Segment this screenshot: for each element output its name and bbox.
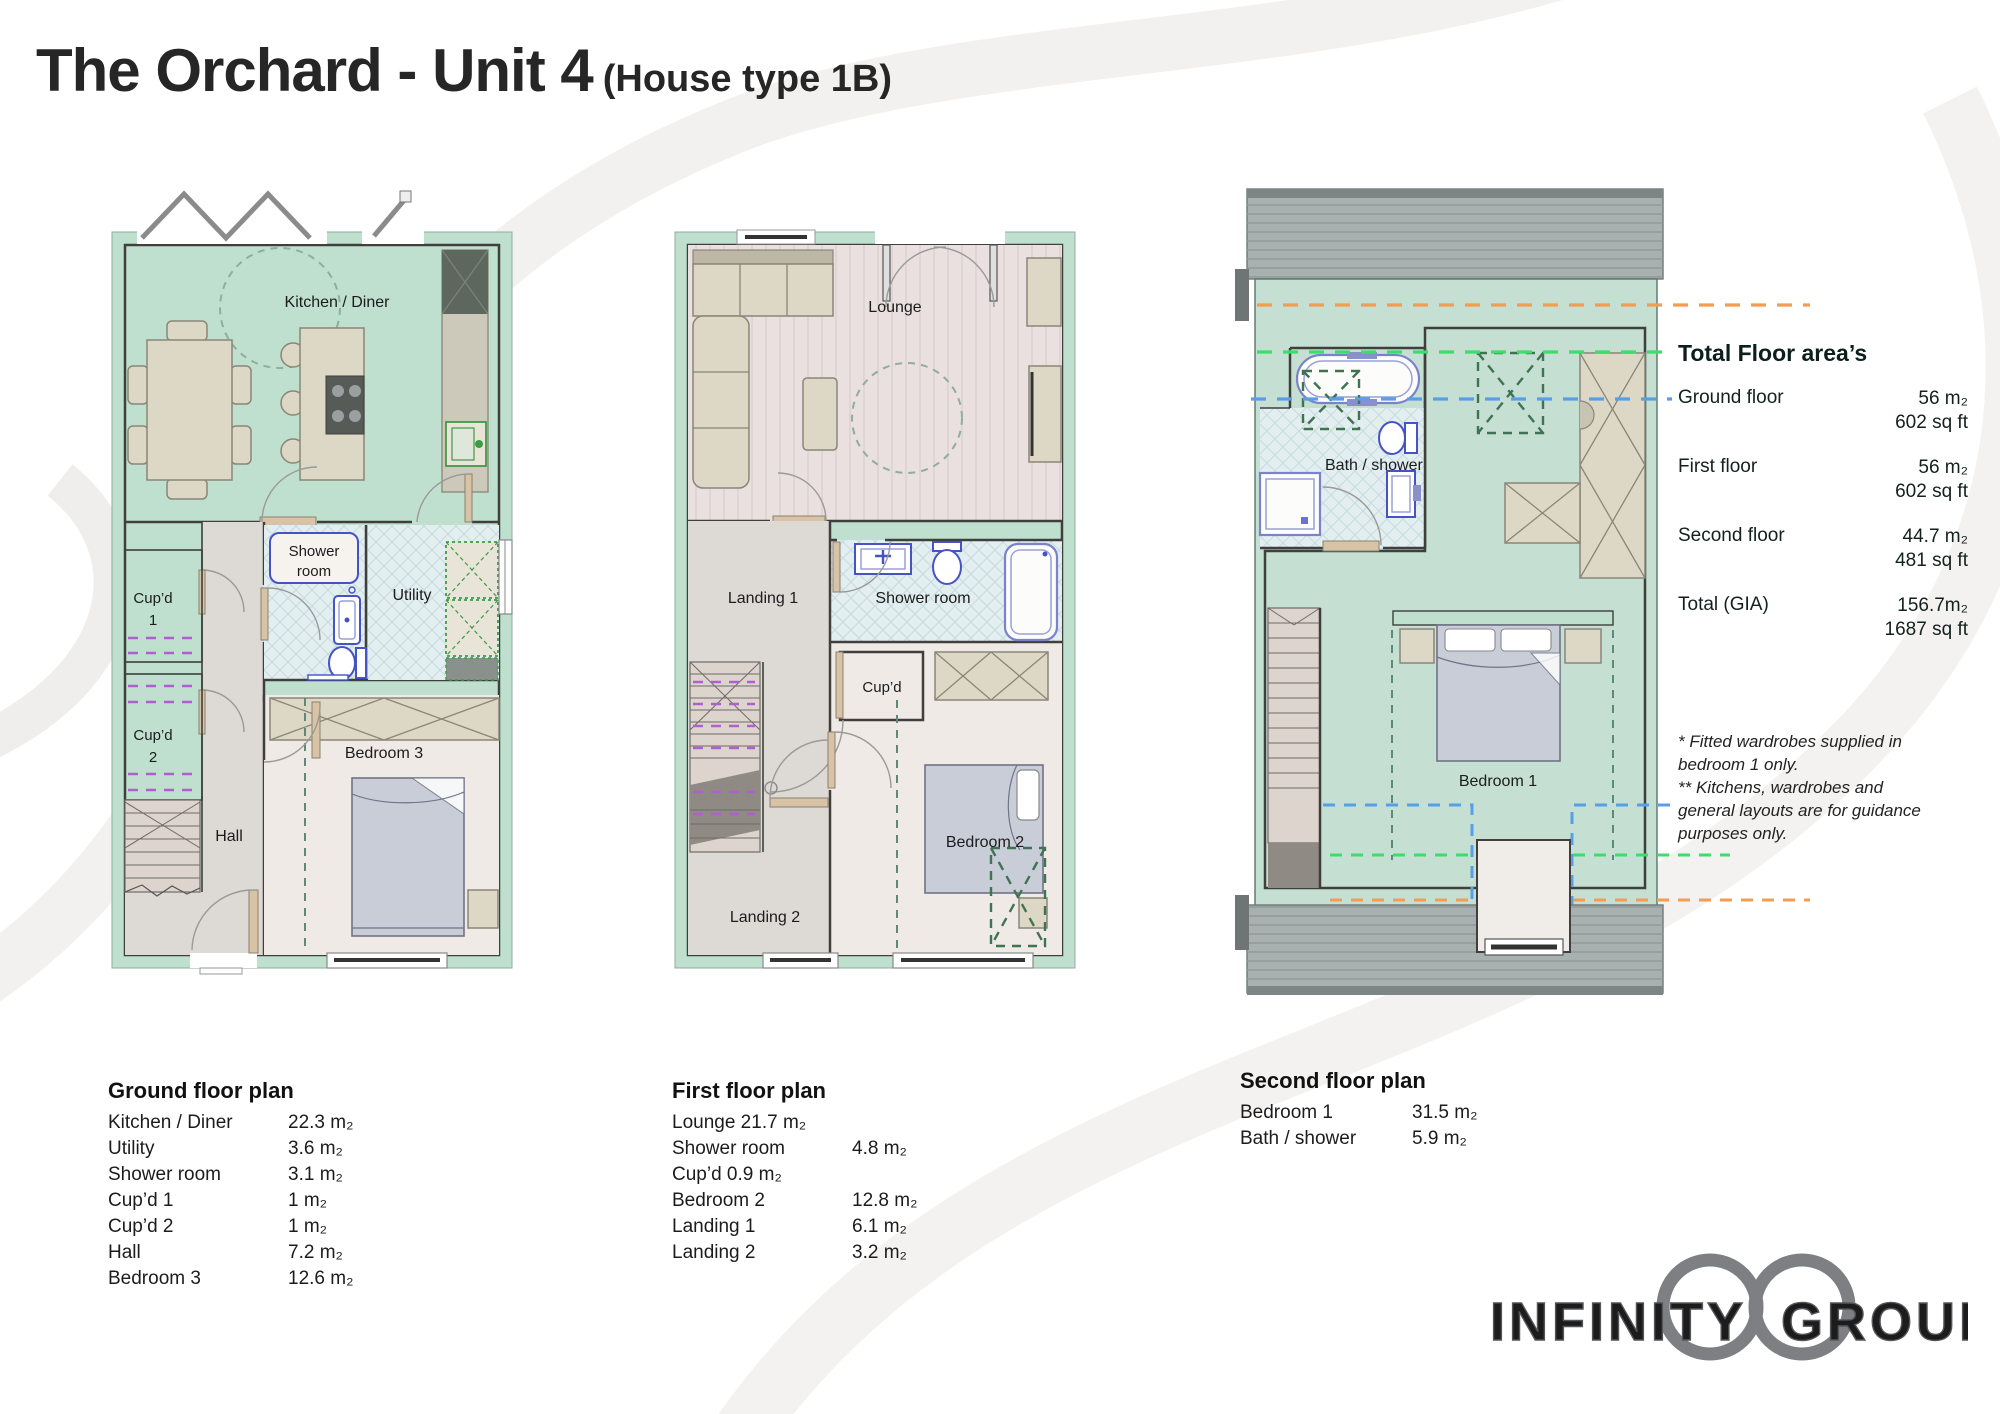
table-row: Cup’d 21 m₂: [108, 1214, 353, 1240]
title-suffix: (House type 1B): [603, 58, 892, 100]
kitchen-island: [281, 328, 364, 480]
table-row: Shower room4.8 m₂: [672, 1136, 917, 1162]
first-floor-table: First floor plan Lounge 21.7 m₂ Shower r…: [672, 1078, 917, 1266]
footnote-1: * Fitted wardrobes supplied in bedroom 1…: [1678, 730, 1923, 776]
hall-lower-floor: [125, 890, 264, 955]
footnotes: * Fitted wardrobes supplied in bedroom 1…: [1678, 730, 1923, 845]
total-row-second: Second floor 44.7 m₂ 481 sq ft: [1678, 525, 1968, 573]
room-label-kitchen-diner: Kitchen / Diner: [285, 294, 391, 311]
table-row: Lounge 21.7 m₂: [672, 1110, 917, 1136]
second-table-heading: Second floor plan: [1240, 1068, 1477, 1094]
bedroom2-wardrobe: [935, 652, 1048, 700]
room-label-bedroom3: Bedroom 3: [345, 745, 423, 762]
table-row: Landing 16.1 m₂: [672, 1214, 917, 1240]
first-floor-windows: [763, 953, 1033, 968]
room-label-hall: Hall: [215, 828, 243, 845]
ground-table-heading: Ground floor plan: [108, 1078, 353, 1104]
room-label-shower-line1: Shower: [289, 543, 340, 560]
table-row: Bedroom 212.8 m₂: [672, 1188, 917, 1214]
first-floor-stairs: [690, 662, 763, 852]
room-label-bedroom1: Bedroom 1: [1459, 773, 1537, 790]
table-row: Bedroom 131.5 m₂: [1240, 1100, 1477, 1126]
total-row-first: First floor 56 m₂ 602 sq ft: [1678, 456, 1968, 504]
room-label-bedroom2: Bedroom 2: [946, 834, 1024, 851]
room-label-landing1: Landing 1: [728, 590, 798, 607]
bedroom3: [264, 695, 499, 955]
room-label-shower-line2: room: [297, 563, 331, 580]
coffee-table: [803, 378, 837, 450]
room-label-landing2: Landing 2: [730, 909, 800, 926]
total-row-gia: Total (GIA) 156.7m₂ 1687 sq ft: [1678, 594, 1968, 642]
room-label-cupd1-line1: Cup’d: [133, 590, 172, 607]
room-label-cupd2-line2: 2: [149, 749, 157, 766]
table-row: Shower room3.1 m₂: [108, 1162, 353, 1188]
logo-word-infinity: INFINITY: [1490, 1292, 1747, 1352]
ground-stairs: [125, 796, 202, 896]
bifold-door-symbols: [137, 191, 424, 244]
table-row: Cup’d 11 m₂: [108, 1188, 353, 1214]
total-floor-areas: Total Floor area’s Ground floor 56 m₂ 60…: [1678, 340, 1968, 663]
second-floor-stairs: [1268, 608, 1320, 888]
totals-heading: Total Floor area’s: [1678, 340, 1968, 367]
table-row: Kitchen / Diner22.3 m₂: [108, 1110, 353, 1136]
table-row: Bath / shower5.9 m₂: [1240, 1126, 1477, 1152]
table-row: Cup’d 0.9 m₂: [672, 1162, 917, 1188]
table-row: Utility3.6 m₂: [108, 1136, 353, 1162]
footnote-2: ** Kitchens, wardrobes and general layou…: [1678, 776, 1923, 845]
infinity-group-logo: INFINITY GROUP: [1488, 1245, 1968, 1395]
ground-floor-table: Ground floor plan Kitchen / Diner22.3 m₂…: [108, 1078, 353, 1292]
first-floor-plan: Lounge Landing 1 Landing 2: [675, 190, 1075, 975]
room-label-first-shower: Shower room: [875, 590, 970, 607]
room-label-first-cupd: Cup’d: [862, 679, 901, 696]
room-label-bath-shower: Bath / shower: [1325, 457, 1424, 474]
lounge-top-window: [737, 230, 815, 244]
dining-table: [128, 321, 251, 499]
floorplan-sheet: { "title": { "main": "The Orchard - Unit…: [0, 0, 2000, 1414]
room-label-cupd2-line1: Cup’d: [133, 727, 172, 744]
kitchen-sink: [446, 422, 486, 466]
ground-floor-plan: Kitchen / Diner: [112, 190, 512, 975]
bedroom3-window: [327, 953, 447, 968]
page-title: The Orchard - Unit 4(House type 1B): [36, 36, 892, 105]
total-row-ground: Ground floor 56 m₂ 602 sq ft: [1678, 387, 1968, 435]
table-row: Landing 23.2 m₂: [672, 1240, 917, 1266]
title-main: The Orchard - Unit 4: [36, 37, 593, 104]
room-label-utility: Utility: [392, 587, 431, 604]
room-label-lounge: Lounge: [868, 299, 921, 316]
logo-word-group: GROUP: [1781, 1292, 1968, 1352]
first-table-heading: First floor plan: [672, 1078, 917, 1104]
dormer: [1477, 840, 1570, 952]
room-label-cupd1-line2: 1: [149, 612, 157, 629]
utility-room: [368, 525, 512, 680]
table-row: Bedroom 312.6 m₂: [108, 1266, 353, 1292]
table-row: Hall7.2 m₂: [108, 1240, 353, 1266]
second-floor-table: Second floor plan Bedroom 131.5 m₂ Bath …: [1240, 1068, 1477, 1152]
